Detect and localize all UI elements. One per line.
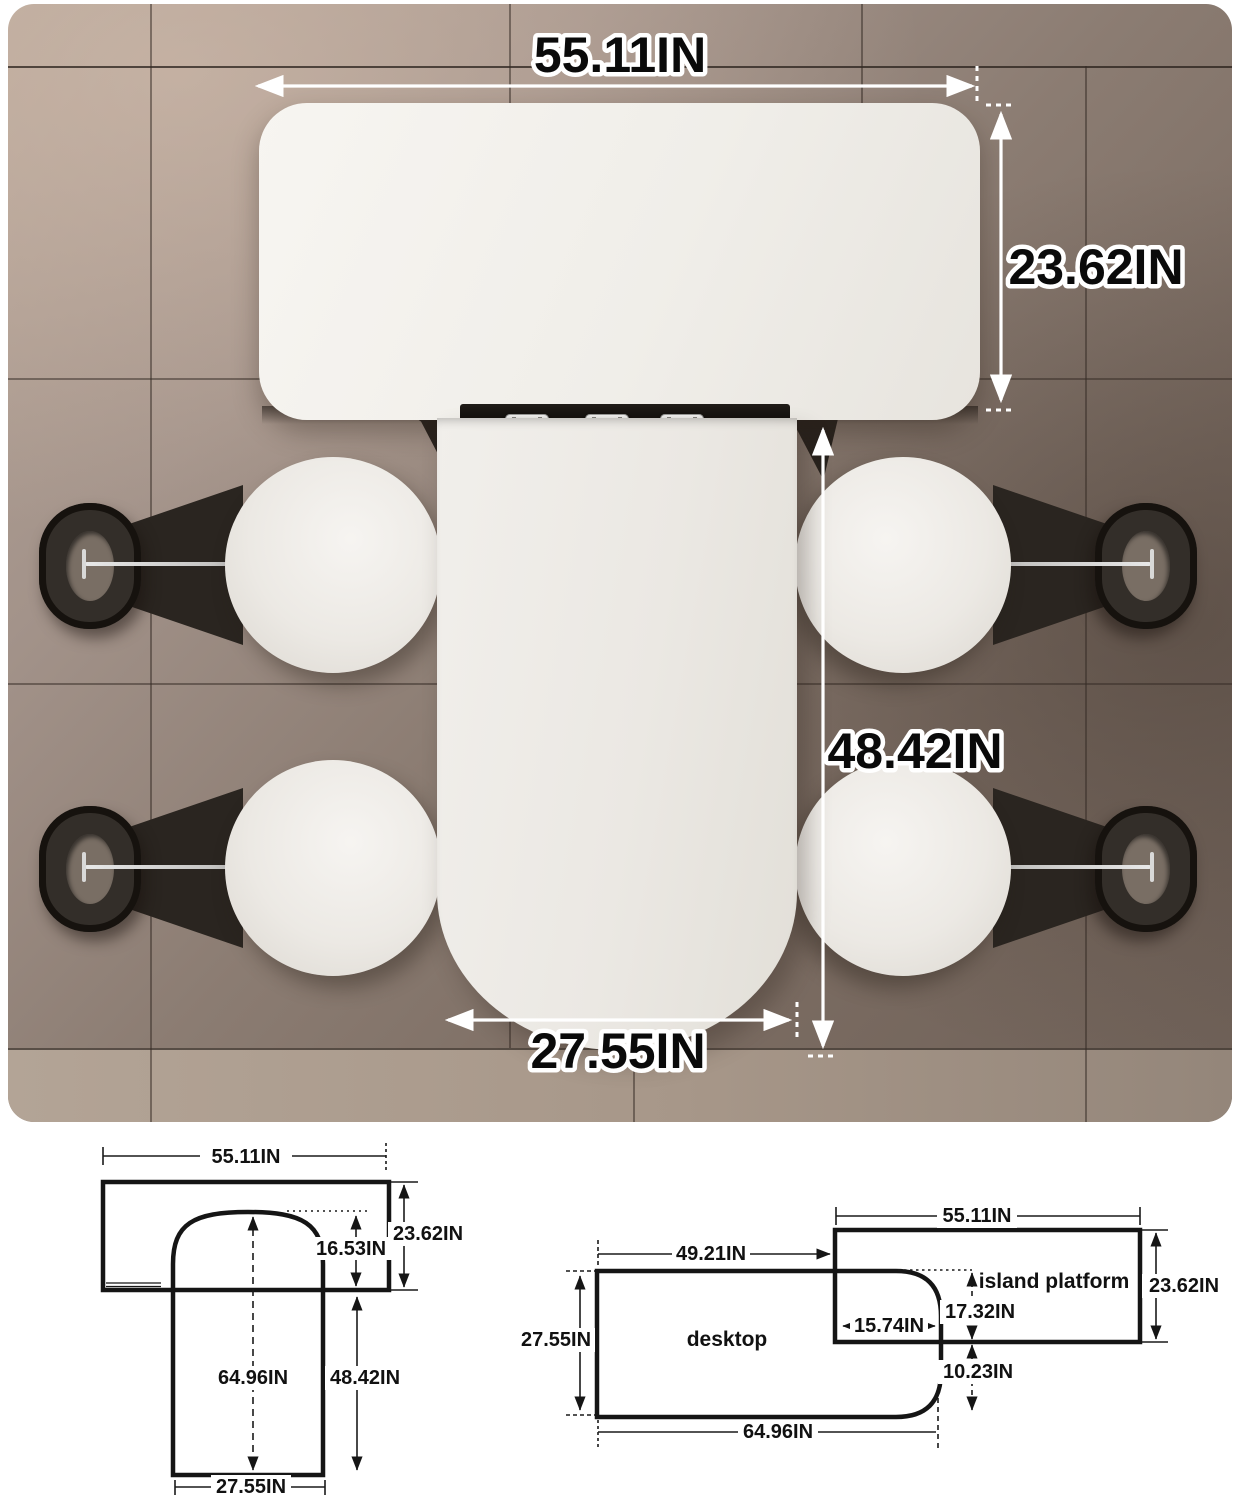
dim-label: 64.96IN [218,1367,288,1389]
dim-label: 49.21IN [676,1243,746,1265]
dim-left-column-length: 48.42IN [325,1297,405,1470]
dim-label: 55.11IN [212,1146,281,1168]
left-drawing: 55.11IN 23.62IN 16.53IN 64.96IN [103,1143,468,1498]
dim-label: 27.55IN [521,1329,591,1351]
dim-right-desktop-depth: 27.55IN [517,1271,595,1415]
dim-label: 48.42IN [330,1367,400,1389]
dim-right-island-width: 55.11IN [836,1204,1140,1228]
dim-left-column-width: 27.55IN [175,1475,325,1498]
dim-label: 23.62IN [393,1223,463,1245]
island-outline [103,1182,389,1290]
dim-left-total-length: 64.96IN [214,1217,294,1470]
dim-right-lower-split: 10.23IN [938,1345,1018,1410]
dim-label: 15.74IN [854,1315,924,1337]
dim-label: 64.96IN [743,1421,813,1443]
right-drawing: 49.21IN 27.55IN desktop island platform … [517,1204,1226,1452]
dim-label: 10.23IN [943,1361,1013,1383]
dim-right-island-depth: 23.62IN [1142,1230,1226,1342]
dim-left-top-width: 55.11IN [103,1143,386,1171]
dim-label: 16.53IN [316,1238,386,1260]
dim-label: 17.32IN [945,1301,1015,1323]
dim-label: 27.55IN [216,1476,286,1498]
island-label: island platform [979,1270,1130,1293]
dim-left-island-depth: 23.62IN [388,1182,468,1290]
desktop-label: desktop [687,1328,768,1351]
dim-right-overlap-width: 15.74IN [843,1314,935,1337]
column-outline [173,1212,323,1475]
dimension-drawings: 55.11IN 23.62IN 16.53IN 64.96IN [0,0,1241,1500]
dim-right-desktop-offset: 49.21IN [598,1240,830,1266]
dim-right-desktop-length: 64.96IN [598,1398,938,1452]
dim-label: 23.62IN [1149,1275,1219,1297]
product-dimension-sheet: 55.11IN 23.62IN 48.42IN 27.55IN [0,0,1241,1500]
dim-label: 55.11IN [943,1205,1012,1227]
